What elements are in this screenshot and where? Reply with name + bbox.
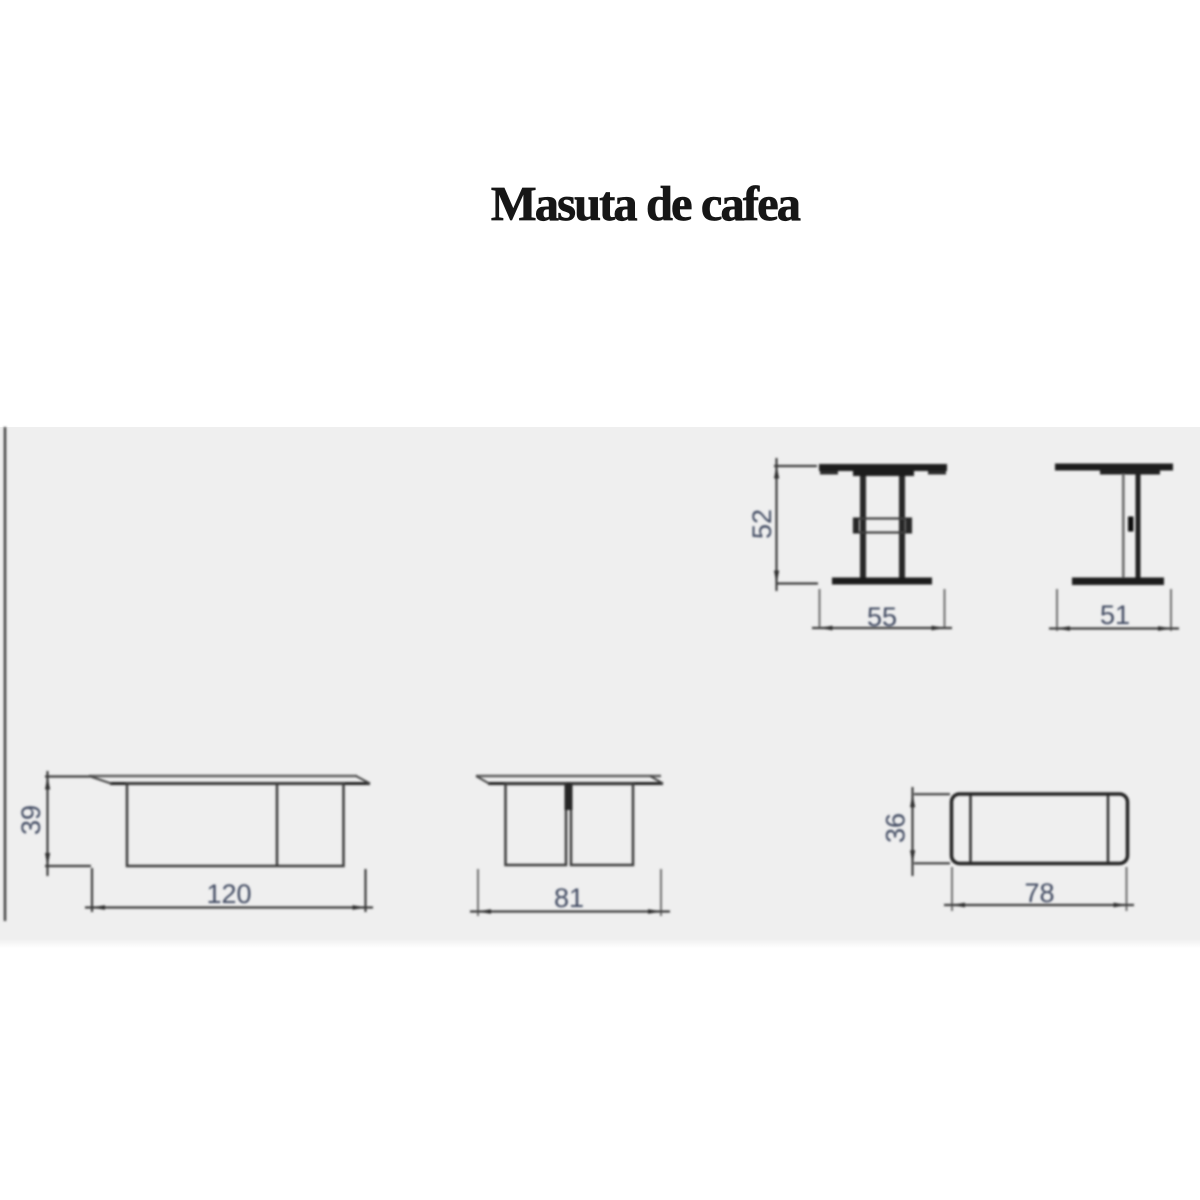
- svg-text:81: 81: [554, 883, 584, 913]
- svg-text:36: 36: [881, 813, 911, 843]
- svg-text:55: 55: [867, 602, 897, 632]
- svg-text:39: 39: [16, 805, 46, 835]
- svg-text:78: 78: [1024, 878, 1054, 908]
- svg-text:51: 51: [1100, 600, 1130, 630]
- svg-text:120: 120: [206, 879, 251, 909]
- svg-text:52: 52: [747, 509, 777, 539]
